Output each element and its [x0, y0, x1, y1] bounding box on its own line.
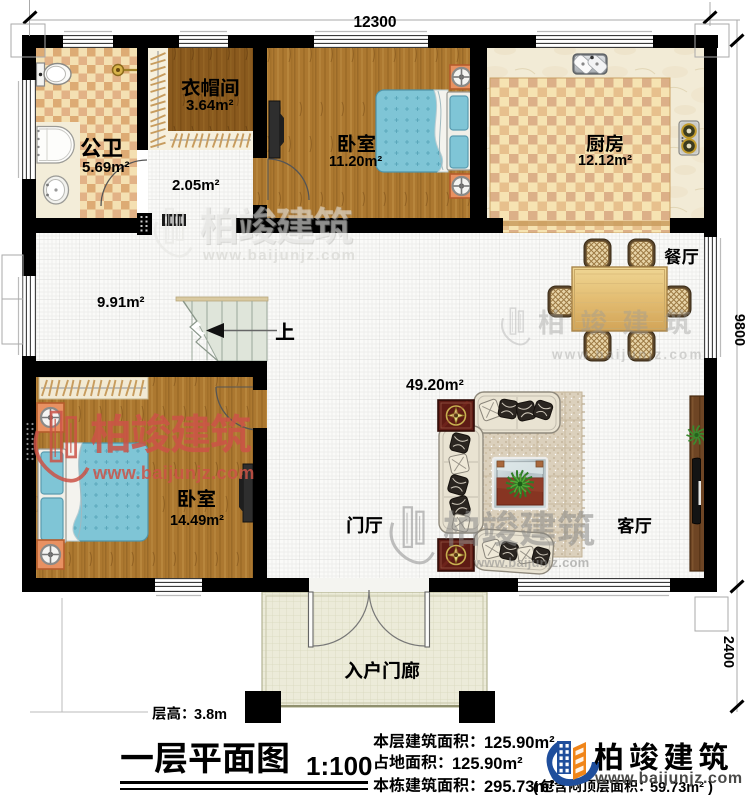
svg-text:9800: 9800 [731, 314, 747, 346]
svg-text:5.69m²: 5.69m² [82, 159, 130, 176]
svg-text:9.91m²: 9.91m² [97, 294, 145, 311]
svg-text:49.20m²: 49.20m² [406, 377, 464, 394]
svg-text:2.05m²: 2.05m² [172, 177, 220, 194]
svg-text:1:100: 1:100 [306, 751, 373, 781]
svg-text:125.90m²: 125.90m² [484, 734, 555, 752]
svg-text:www.baijunjz.com: www.baijunjz.com [473, 555, 589, 570]
svg-text:www.baijunjz.com: www.baijunjz.com [92, 463, 255, 483]
svg-text:11.20m²: 11.20m² [329, 154, 382, 170]
svg-text:3.8m: 3.8m [194, 707, 227, 723]
svg-text:(: ( [533, 779, 538, 796]
svg-text:2400: 2400 [720, 636, 736, 668]
svg-text:3.64m²: 3.64m² [186, 97, 234, 114]
svg-text:www.baijunjz.com: www.baijunjz.com [202, 247, 356, 264]
svg-text:www.baijunjz.com: www.baijunjz.com [594, 770, 743, 787]
svg-text:125.90m²: 125.90m² [452, 755, 523, 773]
svg-text:www.baijunjz.com: www.baijunjz.com [551, 347, 704, 362]
svg-text:12.12m²: 12.12m² [578, 153, 632, 169]
svg-text:14.49m²: 14.49m² [170, 513, 224, 529]
svg-text:12300: 12300 [353, 14, 396, 31]
